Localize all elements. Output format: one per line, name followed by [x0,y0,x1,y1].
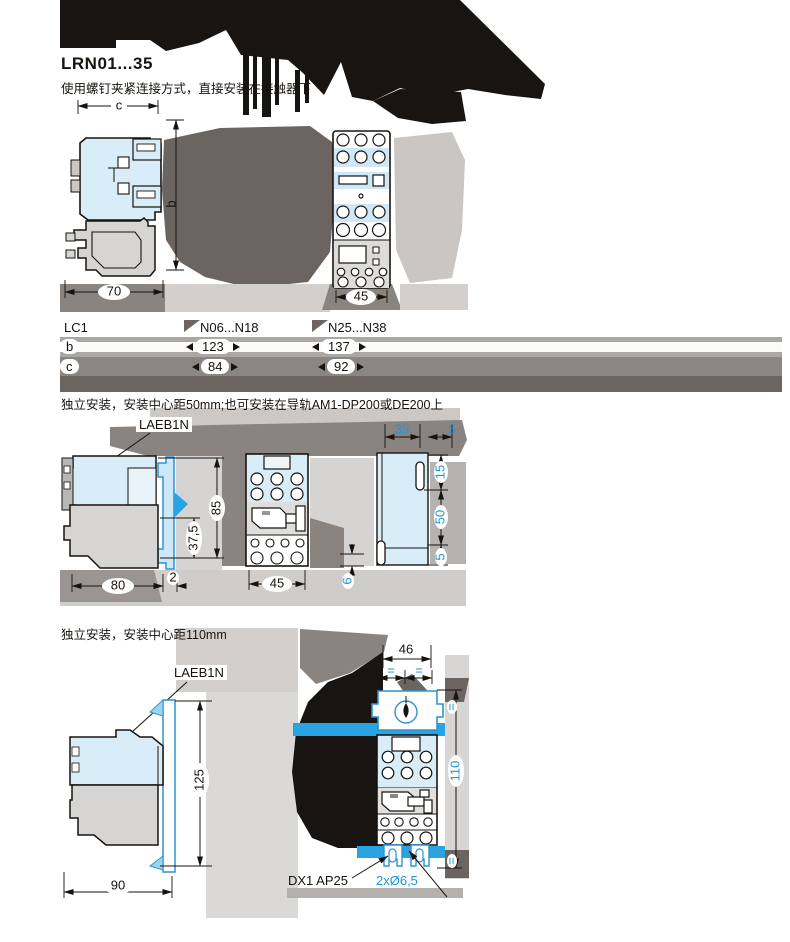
dim-arrow-icon [192,363,199,371]
subtitle-text: 使用螺钉夹紧连接方式，直接安装在接触器下 [61,78,311,97]
background-blob [292,652,383,848]
relay-side-body [70,730,163,785]
laeb1n-plate-side [158,457,174,569]
page-title: LRN01...35 [61,54,153,74]
mid-section-text: 独立安装，安装中心距50mm;也可安装在导轨AM1-DP200或DE200上 [61,394,443,413]
dim-label-45-mid: 45 [270,575,284,590]
dimension-table: LC1 N06...N18 N25...N38 b 123 137 c 84 9… [60,318,782,392]
table-separator-bar [60,376,782,392]
relay-side-body [64,505,158,568]
dim-label-35: 35 [395,421,409,436]
dim-label-80: 80 [111,577,125,592]
dim-label-125: 125 [191,769,206,791]
dim-label-b: b [163,200,178,207]
dim-arrow-icon [312,343,319,351]
laeb1n-callout-mid: LAEB1N [136,417,192,432]
dx1-ap25-label: DX1 AP25 [288,873,348,888]
dim-label-c: c [116,97,123,112]
dim-arrow-icon [186,343,193,351]
dim-label-45: 45 [354,288,368,303]
mounting-slot [389,849,396,862]
dim-arrow-icon [357,363,364,371]
dimension-drawings-canvas: c b 70 45 80 2 37,5 85 45 35 5 15 50 5 6… [0,0,790,942]
table-cell: 92 [318,359,364,374]
dim-arrow-icon [359,343,366,351]
dim-label-70: 70 [107,283,121,298]
dim-label-15: 15 [432,465,447,479]
table-row-label: b [60,339,79,354]
mounting-slot [416,462,424,490]
dim-label-37-5: 37,5 [185,525,200,550]
laeb1n-plate-side [163,700,175,872]
table-row-b-strip [60,342,782,352]
table-header-n06-n18: N06...N18 [200,320,259,335]
datasheet-page: c b 70 45 80 2 37,5 85 45 35 5 15 50 5 6… [0,0,790,942]
dim-label-85: 85 [208,501,223,515]
relay-side-body [74,218,155,276]
mounting-slot [377,541,385,565]
dim-label-46: 46 [399,641,413,656]
laeb1n-callout-bottom: LAEB1N [171,665,227,680]
background-blob [162,126,336,288]
table-value-b-2: 137 [321,339,357,354]
holes-diameter-label: 2xØ6,5 [376,873,418,888]
table-header-n25-n38: N25...N38 [328,320,387,335]
table-header-lc1: LC1 [64,320,88,335]
bottom-section-text: 独立安装，安装中心距110mm [61,624,227,643]
dim-label-5-bot: 5 [432,553,447,560]
table-row-c-band [60,357,782,376]
dim-label-50: 50 [432,510,447,524]
dim-arrow-icon [231,363,238,371]
table-row-label: c [60,359,79,374]
table-value-c-1: 84 [201,359,229,374]
dim-arrow-icon [233,343,240,351]
dim-label-90: 90 [111,877,125,892]
dim-label-110: 110 [447,761,462,782]
table-value-c-2: 92 [327,359,355,374]
dim-label-2: 2 [169,569,176,584]
table-cell: 84 [192,359,238,374]
table-wedge [184,320,200,332]
table-cell: 137 [312,339,366,354]
table-value-b-1: 123 [195,339,231,354]
dim-label-5-top: 5 [448,421,455,436]
fig-top-front-view [333,131,390,303]
dim-label-eq-right: = [415,662,423,677]
dim-arrow-icon [318,363,325,371]
dim-label-eq-top: = [443,703,458,711]
dim-label-eq-bottom: = [443,857,458,865]
fig-bottom-side-view [64,682,212,898]
dim-label-eq-left: = [387,662,395,677]
table-cell: 123 [186,339,240,354]
dim-label-6: 6 [339,577,354,584]
table-wedge [312,320,328,332]
